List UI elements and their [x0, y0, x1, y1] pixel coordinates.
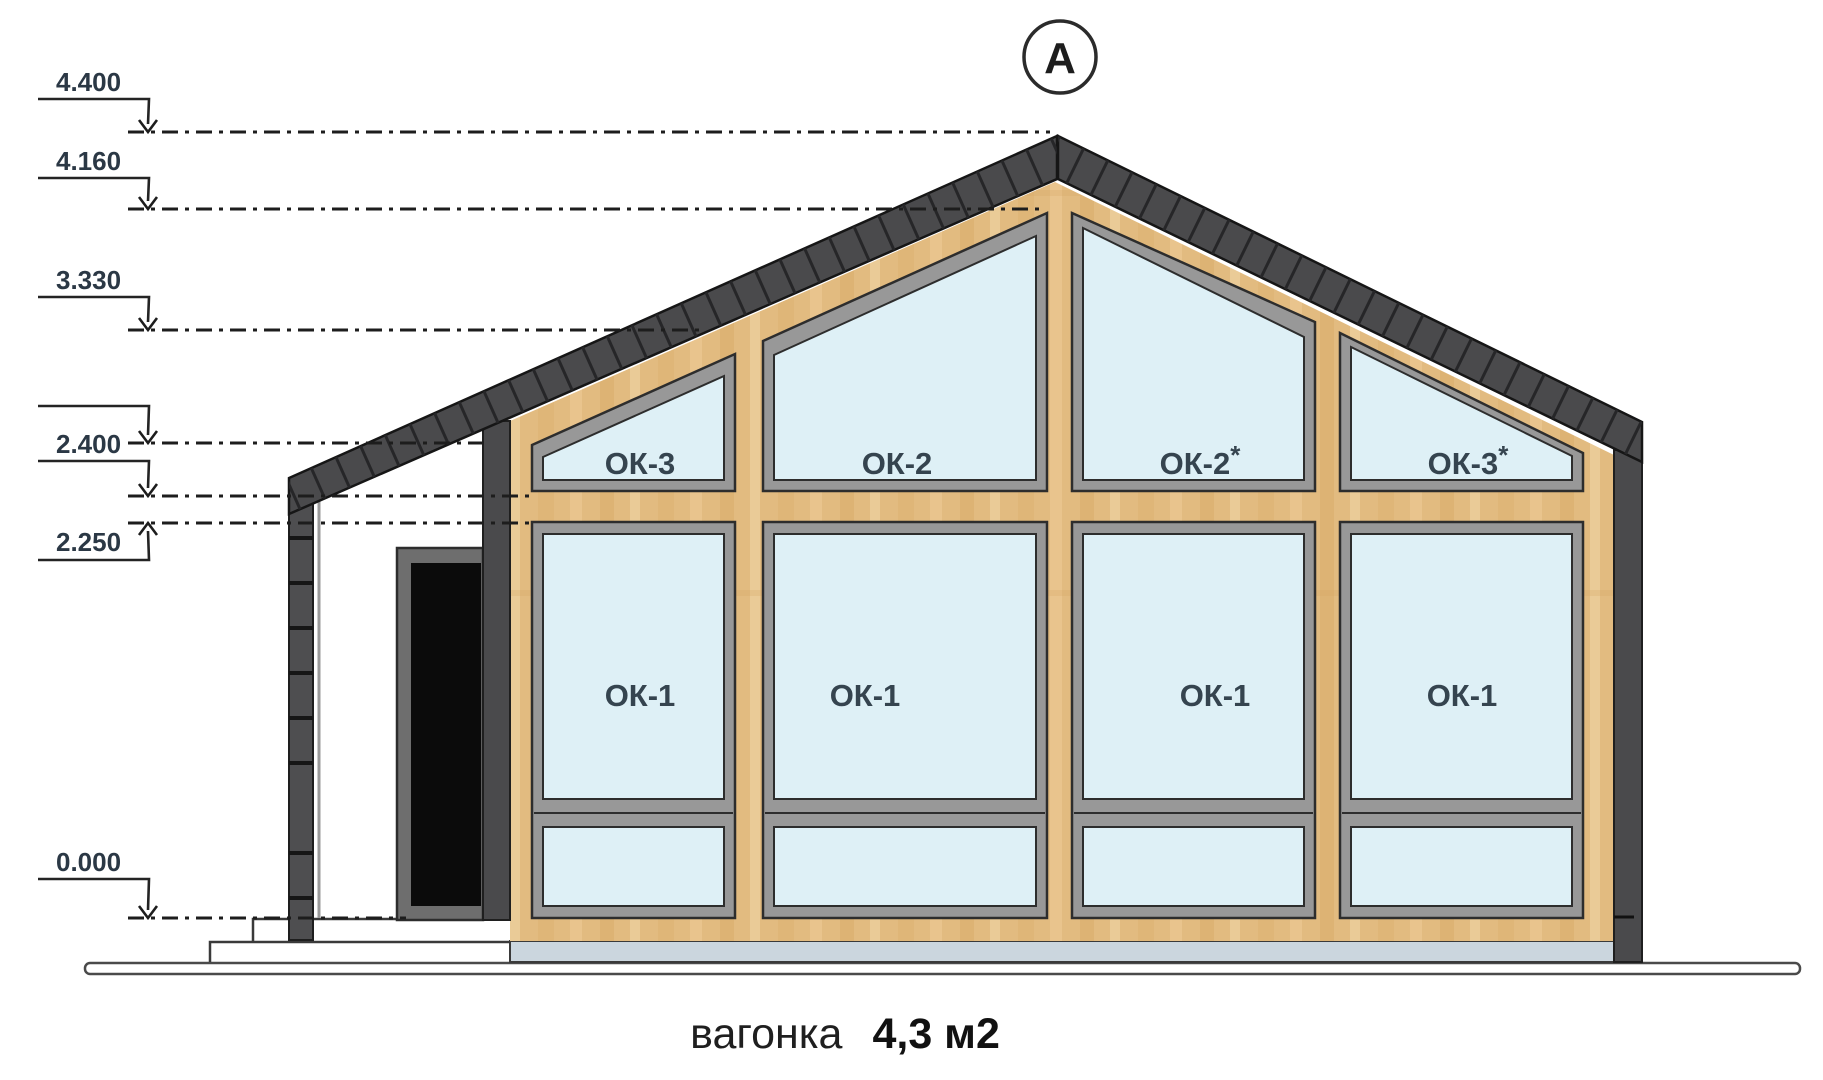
level-value-2250: 2.250 [56, 527, 121, 557]
window-label-ok1-2: ОК-1 [830, 678, 901, 713]
porch-step-upper [253, 919, 483, 942]
ground-line [85, 963, 1800, 974]
axis-marker: А [1024, 21, 1096, 93]
window-label-ok2-star: ОК-2* [1160, 440, 1242, 481]
caption: вагонка4,3 м2 [690, 1010, 1000, 1058]
level-value-0000: 0.000 [56, 847, 121, 877]
window-ok1-col2: ОК-1 [763, 522, 1047, 918]
caption-area-value: 4,3 м2 [872, 1010, 999, 1058]
caption-material: вагонка [690, 1010, 842, 1058]
window-ok1-col3: ОК-1 [1072, 522, 1315, 918]
corner-trim-right [1614, 450, 1642, 962]
elevation-drawing-page: ОК-3 ОК-2 ОК-2* ОК-3* ОК-1 ОК-1 ОК-1 [0, 0, 1823, 1080]
porch-step-lower [210, 942, 510, 962]
entrance-door [397, 548, 483, 920]
window-ok1-col1: ОК-1 [532, 522, 735, 918]
foundation-slab [510, 941, 1642, 962]
level-value-3330: 3.330 [56, 265, 121, 295]
window-label-ok3: ОК-3 [605, 446, 676, 481]
level-mark-4400: 4.400 [38, 67, 1050, 132]
window-ok1-col4: ОК-1 [1340, 522, 1583, 918]
porch-post [289, 495, 313, 940]
window-label-ok3-star: ОК-3* [1428, 440, 1510, 481]
level-value-2400: 2.400 [56, 429, 121, 459]
elevation-drawing: ОК-3 ОК-2 ОК-2* ОК-3* ОК-1 ОК-1 ОК-1 [0, 0, 1823, 1080]
level-mark-4160: 4.160 [38, 146, 1045, 209]
window-label-ok2: ОК-2 [862, 446, 933, 481]
level-value-4160: 4.160 [56, 146, 121, 176]
window-label-ok1-1: ОК-1 [605, 678, 676, 713]
window-label-ok1-3: ОК-1 [1180, 678, 1251, 713]
level-mark-3330: 3.330 [38, 265, 700, 330]
level-value-4400: 4.400 [56, 67, 121, 97]
level-mark-0000: 0.000 [38, 847, 406, 918]
axis-marker-letter: А [1044, 34, 1076, 83]
window-label-ok1-4: ОК-1 [1427, 678, 1498, 713]
